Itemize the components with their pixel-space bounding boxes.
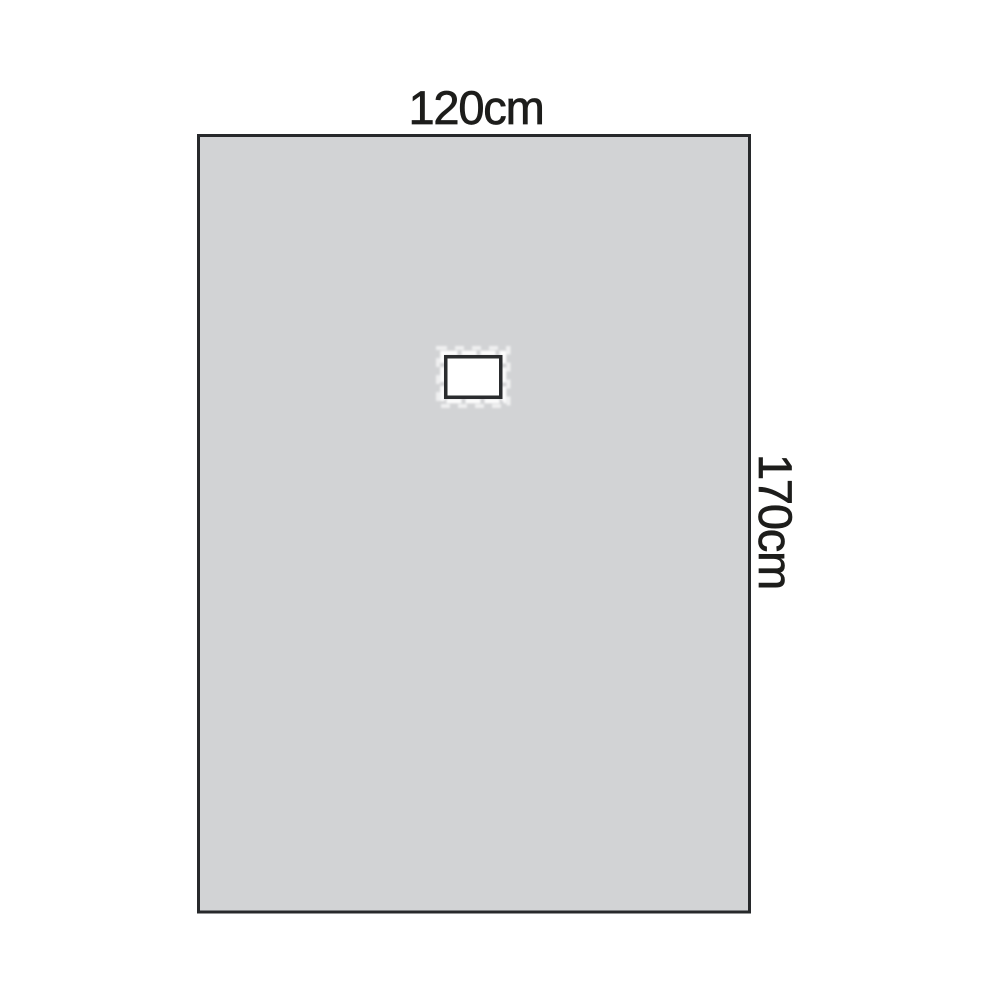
svg-text:170cm: 170cm [749,454,802,589]
svg-text:120cm: 120cm [408,81,543,134]
